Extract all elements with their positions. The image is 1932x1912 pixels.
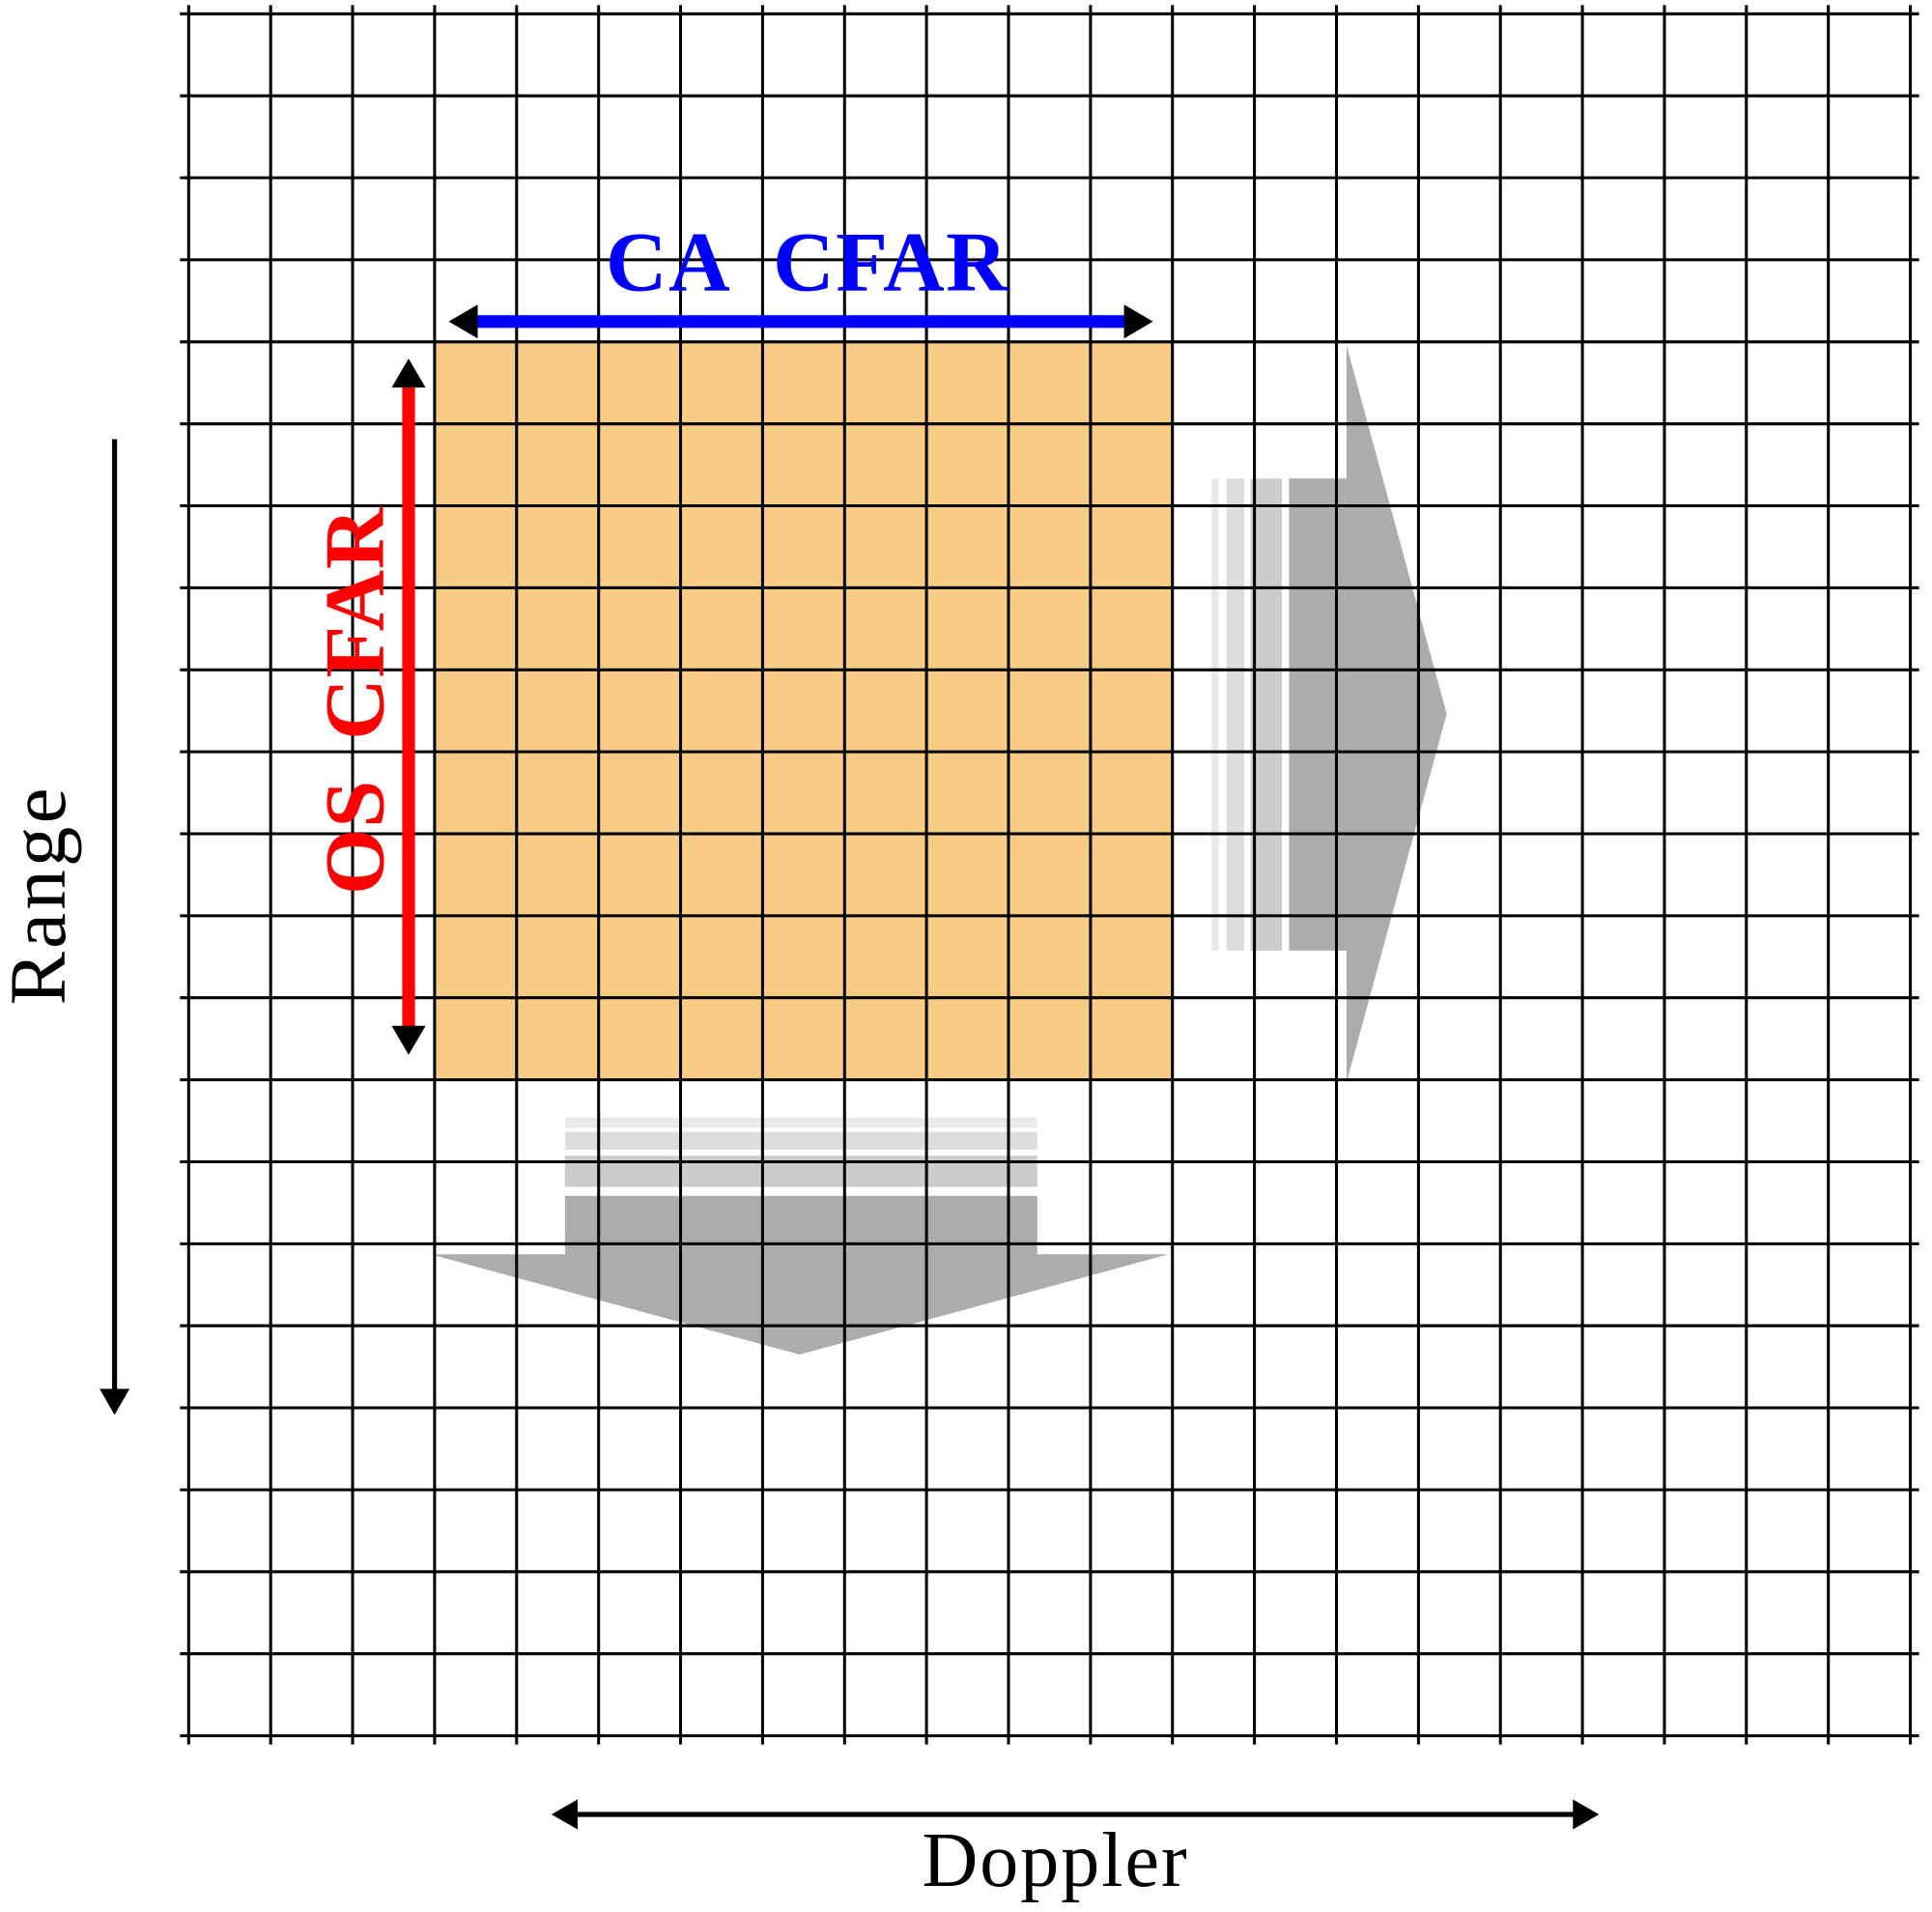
svg-text:Range: Range: [0, 785, 82, 1005]
svg-text:CA CFAR: CA CFAR: [606, 216, 1009, 310]
svg-text:OS CFAR: OS CFAR: [309, 506, 403, 895]
svg-text:Doppler: Doppler: [923, 1818, 1189, 1903]
